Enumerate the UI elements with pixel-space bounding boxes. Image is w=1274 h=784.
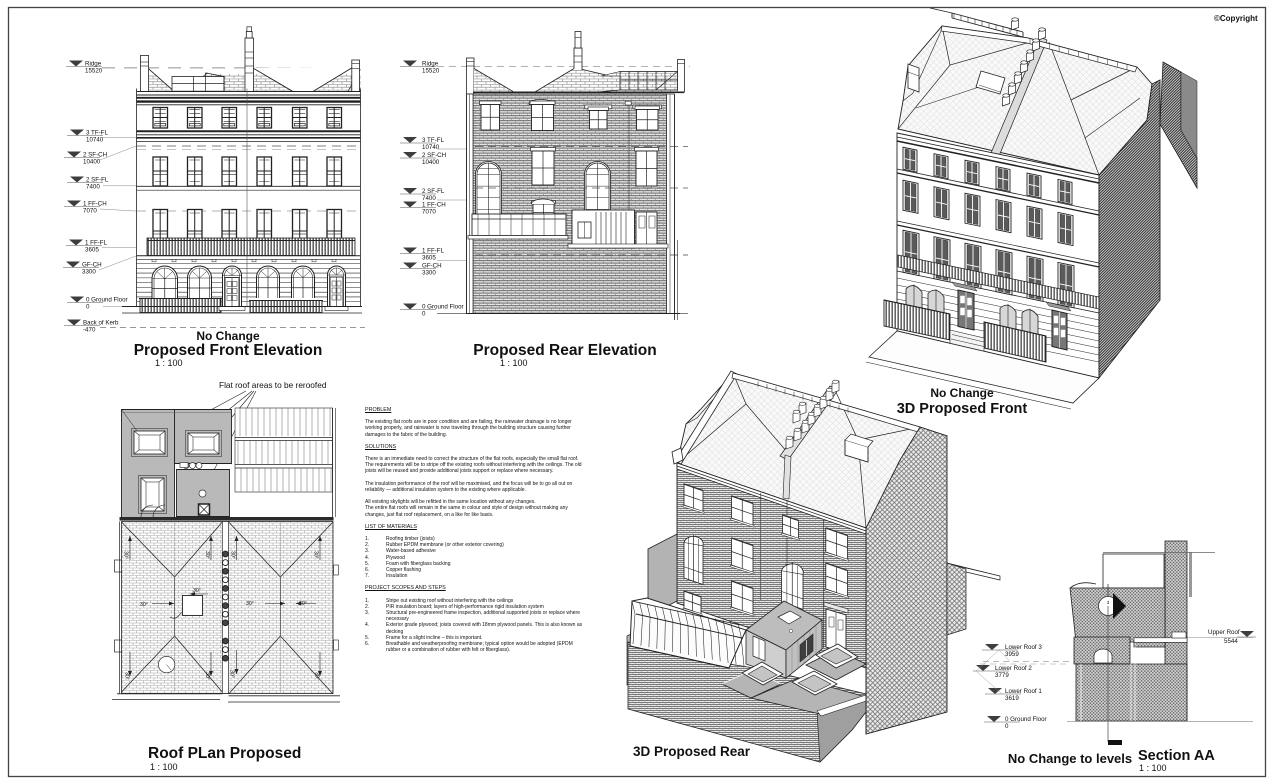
- svg-text:©Copyright: ©Copyright: [1214, 14, 1258, 23]
- svg-text:15520: 15520: [85, 67, 103, 74]
- svg-text:7070: 7070: [83, 207, 97, 214]
- svg-text:30°: 30°: [124, 672, 130, 680]
- svg-text:0 Ground Floor: 0 Ground Floor: [86, 296, 128, 303]
- svg-text:Ridge: Ridge: [85, 60, 102, 67]
- svg-text:Lower Roof 2: Lower Roof 2: [995, 665, 1032, 672]
- svg-text:30°: 30°: [230, 551, 236, 559]
- svg-text:3605: 3605: [422, 254, 436, 261]
- svg-text:Proposed Rear Elevation: Proposed Rear Elevation: [473, 342, 656, 359]
- svg-text:30°: 30°: [246, 601, 254, 607]
- svg-text:30°: 30°: [204, 672, 210, 680]
- svg-text:2 SF-CH: 2 SF-CH: [422, 152, 446, 159]
- svg-text:No Change: No Change: [930, 386, 994, 400]
- svg-text:No Change to levels: No Change to levels: [1008, 751, 1132, 766]
- svg-text:Flat roof areas to be reroofe: Flat roof areas to be reroofed: [219, 380, 327, 390]
- svg-text:10400: 10400: [83, 158, 101, 165]
- svg-text:3619: 3619: [1005, 695, 1019, 702]
- svg-text:2 SF-CH: 2 SF-CH: [83, 151, 107, 158]
- svg-text:1 FF-FL: 1 FF-FL: [422, 247, 445, 254]
- svg-text:1 : 100: 1 : 100: [500, 358, 528, 368]
- svg-text:10740: 10740: [86, 136, 104, 143]
- svg-text:3 TF-FL: 3 TF-FL: [86, 129, 108, 136]
- svg-text:1 FF-CH: 1 FF-CH: [422, 201, 446, 208]
- svg-text:3779: 3779: [995, 672, 1009, 679]
- svg-text:3300: 3300: [82, 268, 96, 275]
- svg-text:1 FF-FL: 1 FF-FL: [85, 239, 108, 246]
- svg-text:1 FF-CH: 1 FF-CH: [83, 200, 107, 207]
- svg-text:0 Ground Floor: 0 Ground Floor: [422, 303, 464, 310]
- svg-text:3 TF-FL: 3 TF-FL: [422, 137, 444, 144]
- svg-text:5544: 5544: [1224, 638, 1238, 645]
- svg-text:Lower Roof 1: Lower Roof 1: [1005, 688, 1042, 695]
- svg-text:30°: 30°: [313, 551, 319, 559]
- svg-text:7400: 7400: [86, 183, 100, 190]
- svg-text:30°: 30°: [123, 551, 129, 559]
- svg-text:15520: 15520: [422, 67, 440, 74]
- svg-text:30°: 30°: [229, 670, 235, 678]
- svg-text:Upper Roof: Upper Roof: [1208, 629, 1240, 636]
- svg-text:No Change: No Change: [196, 329, 260, 343]
- svg-text:0: 0: [422, 310, 426, 317]
- svg-text:0: 0: [1005, 723, 1009, 730]
- svg-text:1 : 100: 1 : 100: [1139, 763, 1167, 773]
- svg-text:Lower Roof 3: Lower Roof 3: [1005, 644, 1042, 651]
- svg-text:2 SF-FL: 2 SF-FL: [422, 188, 445, 195]
- svg-text:30°: 30°: [140, 602, 148, 608]
- svg-text:10400: 10400: [422, 159, 440, 166]
- svg-text:GF-CH: GF-CH: [82, 261, 102, 268]
- svg-text:30°: 30°: [314, 672, 320, 680]
- svg-text:3605: 3605: [85, 246, 99, 253]
- svg-text:3959: 3959: [1005, 651, 1019, 658]
- svg-text:10740: 10740: [422, 144, 440, 151]
- svg-text:GF-CH: GF-CH: [422, 262, 442, 269]
- svg-text:30°: 30°: [204, 551, 210, 559]
- svg-text:Proposed Front Elevation: Proposed Front Elevation: [134, 342, 323, 359]
- svg-text:7070: 7070: [422, 208, 436, 215]
- svg-text:Back of Kerb: Back of Kerb: [83, 319, 119, 326]
- svg-text:0: 0: [86, 303, 90, 310]
- svg-text:1 : 100: 1 : 100: [150, 762, 178, 772]
- svg-text:Roof PLan Proposed: Roof PLan Proposed: [148, 745, 301, 762]
- svg-text:-470: -470: [83, 326, 96, 333]
- svg-text:3300: 3300: [422, 269, 436, 276]
- svg-text:0 Ground Floor: 0 Ground Floor: [1005, 716, 1047, 723]
- svg-text:3D Proposed Rear: 3D Proposed Rear: [633, 744, 751, 759]
- svg-text:1 : 100: 1 : 100: [155, 358, 183, 368]
- svg-text:3D Proposed Front: 3D Proposed Front: [897, 401, 1028, 417]
- svg-text:2 SF-FL: 2 SF-FL: [86, 176, 109, 183]
- svg-text:Section AA: Section AA: [1138, 748, 1215, 764]
